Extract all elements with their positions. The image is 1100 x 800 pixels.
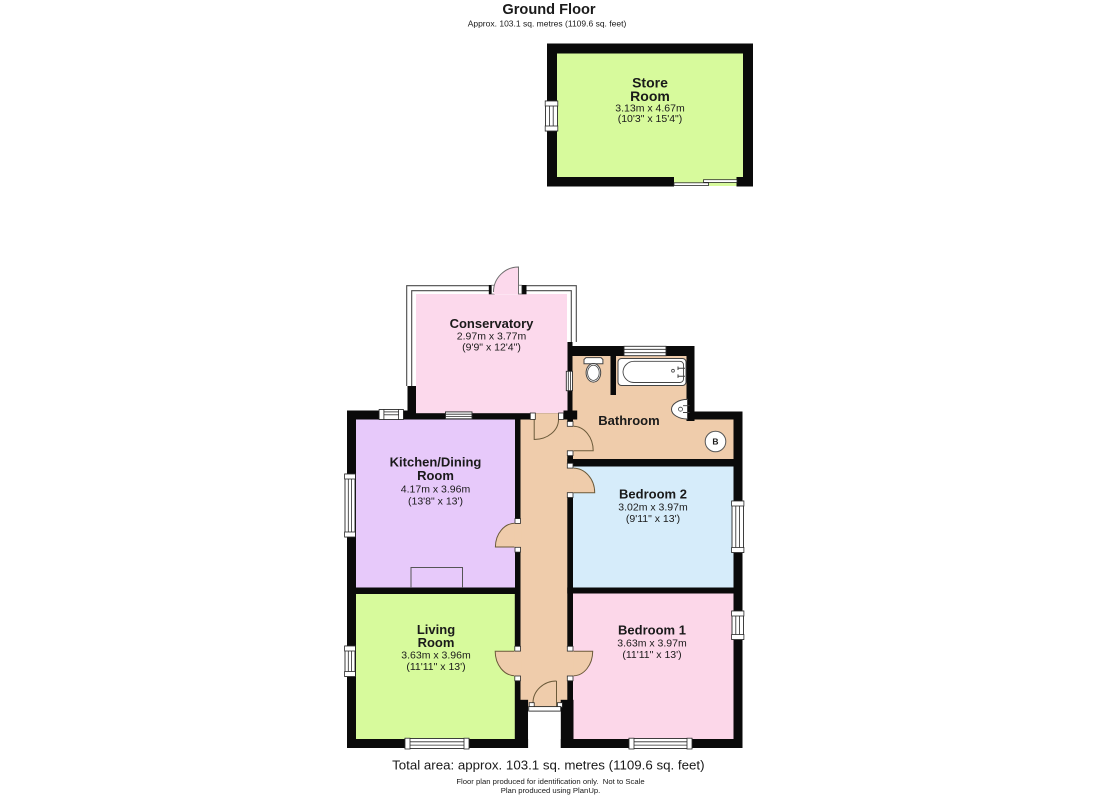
svg-text:(9'11" x 13'): (9'11" x 13') xyxy=(626,513,680,525)
svg-text:Total area: approx. 103.1 sq.: Total area: approx. 103.1 sq. metres (11… xyxy=(392,757,704,772)
svg-text:Bedroom 1: Bedroom 1 xyxy=(618,623,686,638)
svg-text:Room: Room xyxy=(417,468,454,483)
svg-text:Bedroom 2: Bedroom 2 xyxy=(619,487,687,502)
svg-text:(11'11" x 13'): (11'11" x 13') xyxy=(622,649,681,661)
svg-text:Floor plan produced for identi: Floor plan produced for identification o… xyxy=(456,777,644,786)
svg-text:Bathroom: Bathroom xyxy=(598,413,659,428)
svg-text:Conservatory: Conservatory xyxy=(450,316,535,331)
svg-text:(11'11" x 13'): (11'11" x 13') xyxy=(406,661,465,673)
svg-text:(13'8" x 13'): (13'8" x 13') xyxy=(408,496,463,508)
svg-text:B: B xyxy=(712,437,718,447)
svg-text:Plan produced using PlanUp.: Plan produced using PlanUp. xyxy=(501,786,601,795)
svg-text:(9'9" x 12'4"): (9'9" x 12'4") xyxy=(462,342,521,354)
svg-text:Ground Floor: Ground Floor xyxy=(502,2,596,18)
svg-text:3.63m x 3.97m: 3.63m x 3.97m xyxy=(617,638,687,650)
svg-text:3.02m x 3.97m: 3.02m x 3.97m xyxy=(618,502,688,514)
svg-text:Room: Room xyxy=(418,635,455,650)
svg-text:3.63m x 3.96m: 3.63m x 3.96m xyxy=(401,650,471,662)
svg-text:Approx. 103.1 sq. metres (1109: Approx. 103.1 sq. metres (1109.6 sq. fee… xyxy=(468,19,627,29)
svg-text:(10'3" x 15'4"): (10'3" x 15'4") xyxy=(618,113,683,125)
svg-text:4.17m x 3.96m: 4.17m x 3.96m xyxy=(401,484,471,496)
